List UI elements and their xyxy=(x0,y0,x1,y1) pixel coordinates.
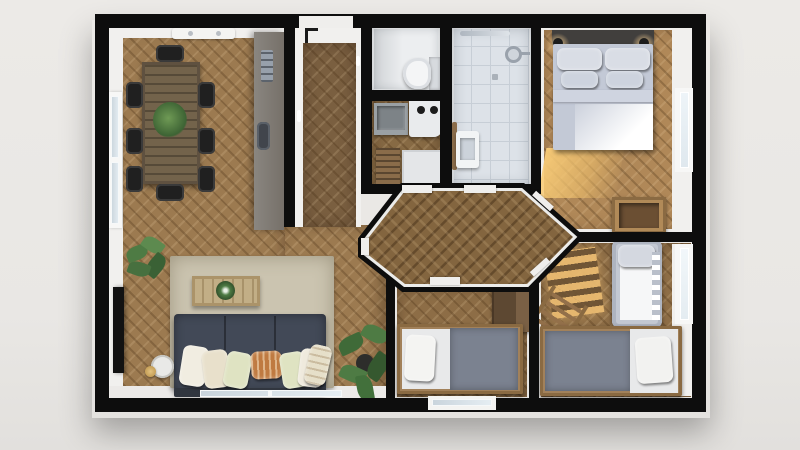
dining-skylight xyxy=(172,28,235,39)
dining-chair xyxy=(126,128,143,154)
dining-chair xyxy=(126,82,143,108)
cooktop-burner xyxy=(430,106,438,114)
kitchen-base-cabinet xyxy=(402,150,442,186)
sofa-seat-seam xyxy=(274,316,276,350)
bed-pillow xyxy=(557,48,602,70)
living-left-window-pane xyxy=(111,162,119,224)
coffee-table-plant xyxy=(216,281,235,300)
outer-wall-top xyxy=(95,14,706,28)
potted-plant-large xyxy=(338,322,392,406)
sofa-seat-seam xyxy=(224,316,226,350)
wall-bathroom-bedroom xyxy=(531,27,541,187)
wall-kids-nursery-divider xyxy=(529,280,539,400)
skylight-knob xyxy=(216,31,221,36)
cooktop-burner xyxy=(417,106,425,114)
wall-wc-kitchen xyxy=(372,90,440,101)
cooktop-unit xyxy=(409,101,442,137)
kitchen-sink-basin xyxy=(377,106,405,130)
tv xyxy=(113,287,124,373)
single-bed-pillow xyxy=(404,334,436,382)
bed-pillow-small xyxy=(561,71,598,88)
bathroom-ceiling-light xyxy=(460,31,510,36)
wall-bedroom-bottom xyxy=(565,232,706,242)
bedroom-right-window-pane xyxy=(680,92,689,168)
bed-pillow xyxy=(605,48,650,70)
bedroom-sun-patch xyxy=(538,148,625,198)
bathroom-door-threshold xyxy=(464,185,496,193)
skylight-knob xyxy=(188,31,193,36)
outer-wall-left xyxy=(95,14,109,412)
bed-pillow-small xyxy=(606,71,643,88)
entry-hall-floor xyxy=(303,43,356,227)
wc-door-handle xyxy=(356,56,360,66)
living-door-threshold xyxy=(361,238,369,255)
entry-door-opening xyxy=(299,16,353,28)
kids-room-door-threshold xyxy=(430,277,460,285)
dining-chair xyxy=(156,184,184,201)
wall-corridor-left xyxy=(284,27,295,227)
shower-arm xyxy=(520,52,530,55)
dining-chair xyxy=(198,166,215,192)
dining-chair xyxy=(156,45,184,62)
dining-chair xyxy=(126,166,143,192)
wall-corridor-right xyxy=(361,27,372,193)
floor-lamp-gold xyxy=(145,366,156,377)
wall-kids-room-left xyxy=(386,276,395,400)
corridor-door-handle xyxy=(297,110,301,122)
nursery-bed-pillow xyxy=(634,336,673,384)
single-bed-blanket xyxy=(450,328,518,390)
dining-chair xyxy=(198,128,215,154)
throw-pillow-accent xyxy=(250,350,282,380)
toilet-bowl xyxy=(403,58,431,89)
thermostat-panel xyxy=(261,50,273,82)
kids-room-bottom-window-pane xyxy=(432,399,492,406)
dresser-interior xyxy=(619,203,659,228)
potted-plant xyxy=(124,236,168,284)
entry-door-leaf-top xyxy=(305,28,318,31)
bed-sunlit-corner xyxy=(575,104,653,150)
dining-chair xyxy=(198,82,215,108)
outer-wall-right xyxy=(692,14,706,412)
crib-pillow xyxy=(618,245,655,267)
dining-centerpiece-plant xyxy=(153,102,187,138)
kitchen-runner-mat xyxy=(376,148,400,186)
wash-basin-bowl xyxy=(460,138,475,160)
outer-wall-bottom xyxy=(95,398,706,412)
floor-plan xyxy=(0,0,800,450)
duvet-fold xyxy=(553,90,653,102)
cabinet-handle xyxy=(257,122,270,150)
kitchen-door-threshold xyxy=(402,185,432,193)
wall-kids-room-top xyxy=(386,276,539,286)
crib-rail-slats xyxy=(652,252,660,320)
living-left-window-pane xyxy=(111,96,119,158)
floor-drain xyxy=(492,74,498,80)
wall-below-kitchen-bathroom xyxy=(361,184,541,194)
nursery-right-window-pane xyxy=(680,248,689,320)
nursery-bed-blanket xyxy=(545,331,631,391)
wall-wc-bathroom xyxy=(440,27,452,187)
living-bottom-window-frame xyxy=(268,390,272,397)
